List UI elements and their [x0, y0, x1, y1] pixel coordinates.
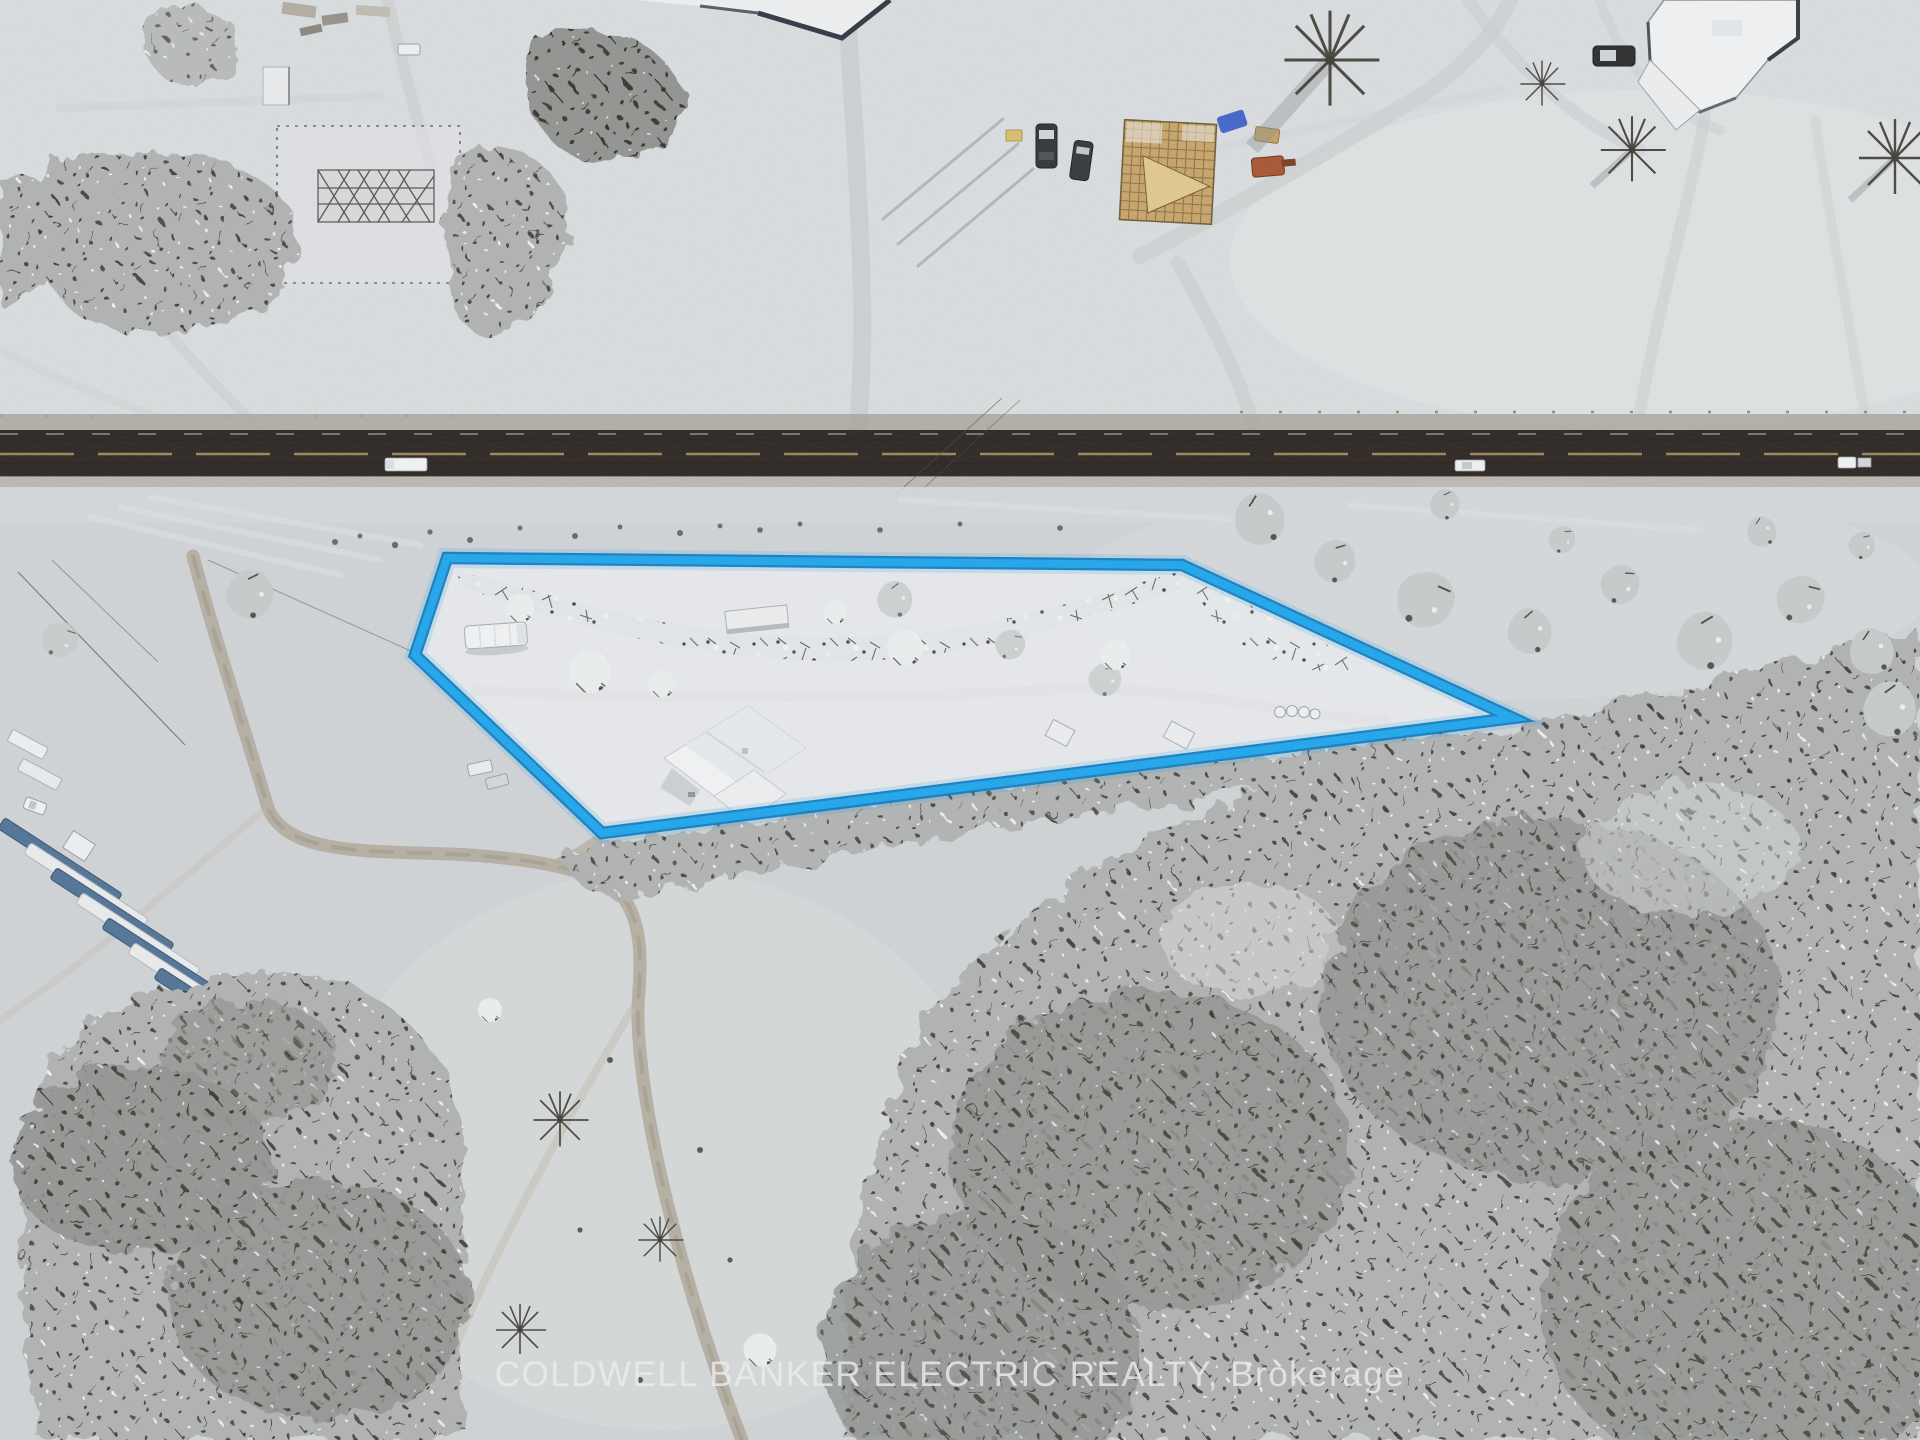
watermark-text: COLDWELL BANKER ELECTRIC REALTY, Brokera…	[495, 1355, 1405, 1394]
photo-grain	[0, 0, 1920, 1440]
aerial-photo-canvas: COLDWELL BANKER ELECTRIC REALTY, Brokera…	[0, 0, 1920, 1440]
aerial-photo: COLDWELL BANKER ELECTRIC REALTY, Brokera…	[0, 0, 1920, 1440]
